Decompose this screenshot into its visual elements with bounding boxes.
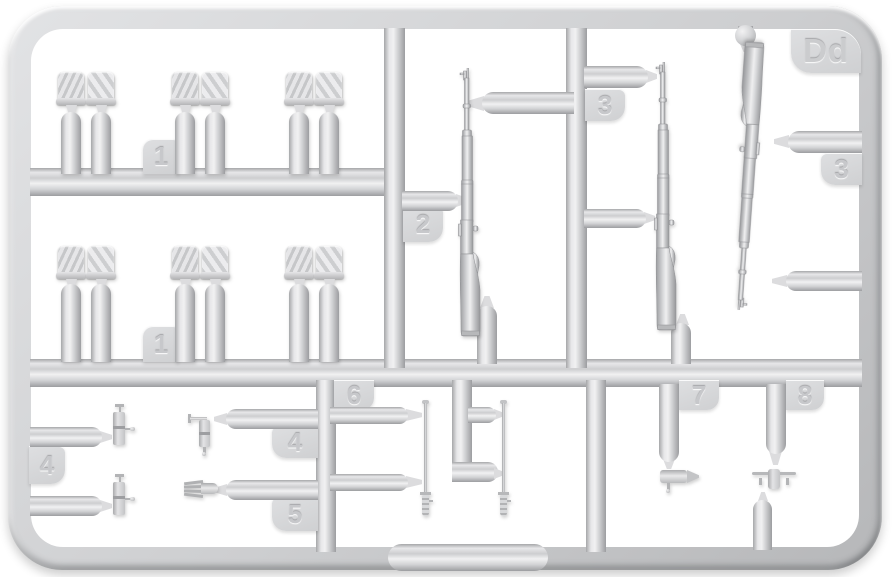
canteen-base [314, 98, 344, 105]
canteen-stub [205, 284, 225, 362]
canteen-unit [172, 72, 198, 174]
stub-rifle3b-mid [788, 131, 862, 153]
part-5-brush [184, 476, 220, 502]
runner-rail-middle [30, 359, 862, 387]
canteen-cover [316, 72, 342, 100]
canteen-base [56, 98, 86, 105]
canteen-cover [286, 246, 312, 274]
canteen-stub [91, 284, 111, 362]
canteen-unit [58, 72, 84, 174]
part-tag-4-right: 4 [272, 426, 318, 458]
canteen-pair [172, 72, 230, 174]
tag-label: 6 [347, 380, 361, 411]
runner-bottom-thick-segment [388, 544, 548, 571]
stub-rifle2-upper [482, 92, 574, 114]
part-tag-3-outer: 3 [821, 153, 862, 185]
canteen-cover [202, 246, 228, 274]
part-4-instance-a [106, 404, 134, 452]
canteen-stub [61, 284, 81, 362]
canteen-unit [316, 72, 342, 174]
part-tag-7: 7 [679, 380, 719, 410]
canteen-unit [316, 246, 342, 362]
canteen-base [284, 98, 314, 105]
canteen-stub [61, 112, 81, 174]
canteen-base [86, 272, 116, 279]
tag-label: 4 [288, 427, 302, 458]
canteen-stub [289, 284, 309, 362]
canteen-base [56, 272, 86, 279]
part-tag-3-inner: 3 [585, 89, 625, 121]
canteen-base [284, 272, 314, 279]
tag-label: 8 [798, 380, 812, 411]
stub-part8-top [766, 384, 786, 454]
sprue-photo: Dd 1 1 2 3 3 4 4 5 6 7 8 [0, 0, 892, 577]
canteen-stub [319, 112, 339, 174]
canteen-stub [91, 112, 111, 174]
runner-vertical-3 [316, 380, 336, 552]
stub-part5 [226, 480, 318, 500]
part-8 [752, 466, 796, 496]
stub-rod1-upper [330, 407, 408, 424]
rifle-part-3-inner [642, 62, 690, 334]
tag-label: 1 [154, 141, 168, 172]
tag-label: 4 [40, 450, 54, 481]
canteen-cover [202, 72, 228, 100]
tag-label: 2 [416, 209, 430, 240]
stub-part4b [30, 496, 102, 516]
canteen-cover [88, 72, 114, 100]
tag-label: 3 [598, 90, 612, 121]
tag-label: 7 [692, 380, 706, 411]
canteen-unit [286, 246, 312, 362]
canteen-stub [205, 112, 225, 174]
part-4-instance-b [106, 474, 134, 522]
canteen-unit [172, 246, 198, 362]
tag-label: 1 [154, 329, 168, 360]
canteen-pair [58, 72, 116, 174]
canteen-cover [88, 246, 114, 274]
canteen-cover [58, 246, 84, 274]
canteen-unit [202, 246, 228, 362]
part-tag-4-left: 4 [29, 446, 65, 484]
rifle-part-2 [446, 68, 494, 340]
canteen-cover [316, 246, 342, 274]
part-tag-2: 2 [403, 206, 443, 242]
canteen-pair [58, 246, 116, 362]
stub-rifle3a-upper [584, 66, 648, 88]
canteen-stub [175, 112, 195, 174]
canteen-base [200, 272, 230, 279]
part-tag-5: 5 [272, 497, 318, 531]
tag-label: 3 [834, 154, 848, 185]
part-6-rod-b [498, 400, 512, 522]
canteen-stub [289, 112, 309, 174]
canteen-unit [286, 72, 312, 174]
part-7 [658, 466, 704, 494]
canteen-base [200, 98, 230, 105]
stub-part4a [30, 427, 102, 447]
tag-label: 5 [288, 499, 302, 530]
stub-part8-bottom [753, 500, 772, 550]
canteen-unit [202, 72, 228, 174]
runner-vertical-4 [586, 380, 606, 552]
canteen-base [314, 272, 344, 279]
part-4-instance-c [188, 405, 220, 455]
stub-rod1-lower [330, 474, 408, 491]
part-6-rod-a [420, 400, 434, 522]
stub-rifle3a-lower [584, 209, 646, 228]
canteen-base [86, 98, 116, 105]
canteen-cover [286, 72, 312, 100]
part-tag-6: 6 [334, 380, 374, 410]
canteen-cover [172, 246, 198, 274]
sprue-id-label: Dd [803, 32, 849, 70]
stub-part7 [659, 384, 679, 462]
canteen-pair [286, 72, 344, 174]
canteen-unit [58, 246, 84, 362]
part-tag-8: 8 [786, 380, 824, 410]
stub-part4c [226, 409, 318, 429]
canteen-cover [58, 72, 84, 100]
canteen-base [170, 98, 200, 105]
runner-elbow-5 [452, 462, 498, 482]
canteen-stub [175, 284, 195, 362]
canteen-stub [319, 284, 339, 362]
canteen-cover [172, 72, 198, 100]
stub-rod2-upper [468, 407, 496, 423]
sprue-id-tag: Dd [791, 29, 861, 73]
canteen-unit [88, 72, 114, 174]
canteen-pair [286, 246, 344, 362]
canteen-unit [88, 246, 114, 362]
stub-rifle3b-lower [786, 271, 862, 291]
canteen-pair [172, 246, 230, 362]
canteen-base [170, 272, 200, 279]
